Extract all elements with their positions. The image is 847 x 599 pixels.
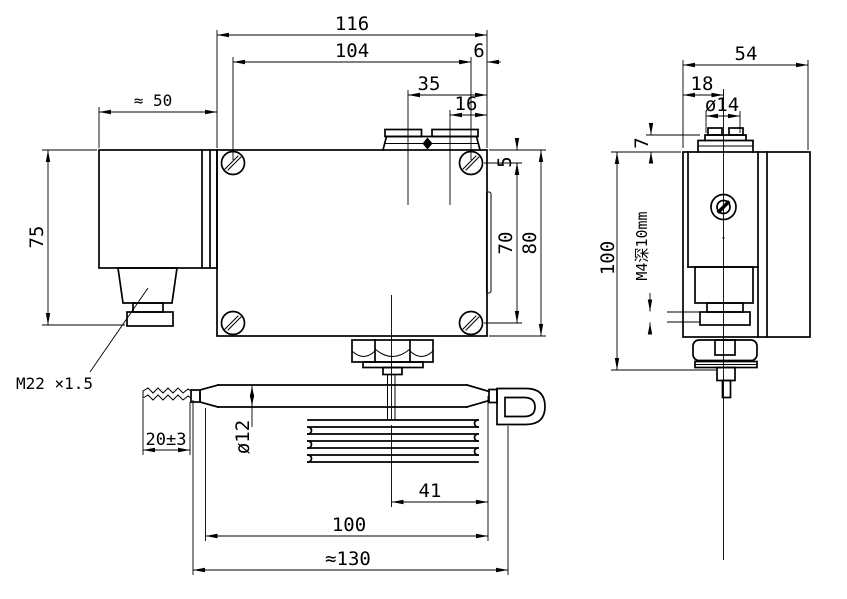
dim-50-label: ≈ 50 bbox=[134, 91, 173, 110]
setpoint-pointer-icon bbox=[423, 138, 433, 150]
dim-116-label: 116 bbox=[335, 13, 369, 35]
dim-screw-edge: 6 bbox=[460, 40, 501, 62]
side-washer-block bbox=[700, 312, 750, 325]
top-bracket bbox=[383, 130, 480, 151]
dim-terminal-offset: 16 bbox=[450, 93, 487, 205]
engineering-drawing-canvas: 116 104 6 35 16 ≈ 50 bbox=[0, 0, 847, 599]
screw-icon bbox=[222, 312, 245, 335]
dim-screw-top: 5 bbox=[494, 142, 517, 172]
side-hex-nut bbox=[693, 340, 757, 361]
side-body-outline bbox=[683, 152, 810, 337]
mount-thread-label: M4深10mm bbox=[633, 211, 651, 280]
cable-gland bbox=[118, 268, 177, 303]
dim-depth: 54 bbox=[683, 43, 808, 150]
gland-neck bbox=[133, 303, 163, 312]
dim-7-label: 7 bbox=[631, 137, 653, 148]
sensor-bulb bbox=[191, 385, 467, 407]
dim-6-label: 6 bbox=[473, 40, 484, 62]
dim-o14-label: ø14 bbox=[705, 94, 739, 116]
side-dimensions: 54 18 ø14 7 100 M4深10mm bbox=[597, 43, 808, 370]
dim-capillary-offset: 41 bbox=[392, 396, 489, 541]
capillary-fitting bbox=[383, 368, 402, 375]
front-view bbox=[99, 130, 545, 463]
side-view bbox=[667, 89, 810, 560]
dim-20-3-label: 20±3 bbox=[146, 430, 187, 450]
dim-41-label: 41 bbox=[419, 480, 442, 502]
switch-body-outline bbox=[217, 150, 487, 336]
dim-connector-width: ≈ 50 bbox=[99, 91, 217, 148]
dim-boss-offset: 18 bbox=[683, 73, 724, 95]
flexible-tail bbox=[143, 388, 191, 400]
dim-flex-tail: 20±3 bbox=[143, 399, 190, 455]
dim-54-label: 54 bbox=[735, 43, 758, 65]
side-gland-block bbox=[695, 267, 753, 303]
hex-nut bbox=[352, 340, 433, 362]
dim-bulb-diameter: ø12 bbox=[232, 386, 254, 455]
dim-80-label: 80 bbox=[519, 232, 541, 255]
dim-boss-height: 7 bbox=[631, 127, 700, 161]
capillary-loop bbox=[467, 385, 545, 425]
capillary-coil bbox=[308, 420, 478, 462]
dim-5-label: 5 bbox=[494, 156, 516, 167]
dim-104-label: 104 bbox=[335, 40, 369, 62]
dim-mount-thread: M4深10mm bbox=[633, 211, 651, 332]
dim-screw-span: 104 bbox=[233, 40, 471, 160]
gland-thread-label: M22 ×1.5 bbox=[16, 374, 93, 393]
front-dimensions: 116 104 6 35 16 ≈ 50 bbox=[16, 13, 546, 575]
dim-overall-width: 116 bbox=[217, 13, 487, 148]
dimension-drawing: 116 104 6 35 16 ≈ 50 bbox=[0, 0, 847, 599]
dim-18-label: 18 bbox=[691, 73, 714, 95]
dim-35-label: 35 bbox=[418, 73, 441, 95]
gland-cap bbox=[127, 312, 173, 326]
dim-16-label: 16 bbox=[455, 93, 478, 115]
dim-70-label: 70 bbox=[495, 232, 517, 255]
connector-housing bbox=[99, 150, 217, 268]
dim-100-side-label: 100 bbox=[597, 241, 619, 275]
screw-icon bbox=[460, 312, 483, 335]
dim-100-label: 100 bbox=[332, 514, 366, 536]
dim-connector-height: 75 bbox=[26, 150, 125, 325]
dim-130-label: ≈130 bbox=[325, 548, 371, 570]
dim-o12-label: ø12 bbox=[232, 420, 254, 454]
dim-75-label: 75 bbox=[26, 226, 48, 249]
dim-screw-span-v: 70 bbox=[484, 163, 522, 323]
